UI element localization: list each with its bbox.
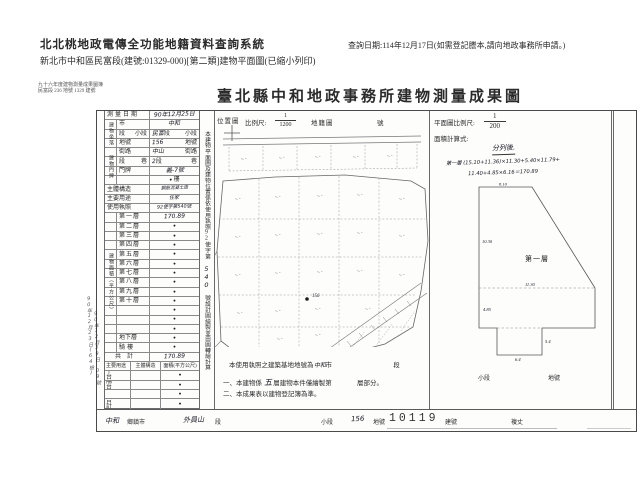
building-info-form: 建物坐落 建物門牌 建物面積（平方公尺） 測量日期 90年12月25日 市 中和… <box>104 111 200 409</box>
floor-plan-drawing: 8.10 10.30 第一層 11.30 4.85 5.4 6.4 <box>475 183 605 369</box>
survey-date-label: 測量日期 <box>107 112 139 118</box>
row-door: 門牌 義-7號 <box>105 167 199 176</box>
row-street: 街路 中山 街路 <box>105 148 199 157</box>
strip-section-value: 外員山 <box>183 415 204 426</box>
strip-township-value: 中和 <box>105 416 119 426</box>
floor-area-value: ● <box>173 271 176 276</box>
dim-mid: 11.30 <box>525 282 536 287</box>
row-section: 段小段 民富段 小段 <box>105 130 199 139</box>
floor-area-value: ● <box>173 317 176 322</box>
strip-parcel-label: 地號 <box>373 417 385 426</box>
row-survey-date: 測量日期 90年12月25日 <box>105 111 199 120</box>
license-value: 92使字第540號 <box>157 205 192 211</box>
row-structure: 主體構造 鋼筋混凝土造 <box>105 185 199 194</box>
sheet-title: 臺北縣中和地政事務所建物測量成果圖 <box>170 85 570 106</box>
row-floor-2: 第二層● <box>105 223 199 232</box>
survey-sheet: 建物坐落 建物門牌 建物面積（平方公尺） 測量日期 90年12月25日 市 中和… <box>96 110 637 432</box>
map-note-2: 一、本建物係 五 層建物本件僅繪製第 層部分。 <box>223 379 383 388</box>
annex-usage-header: 主要用途 <box>106 364 126 369</box>
query-date: 查詢日期:114年12月17日(如需登記謄本,請向地政事務所申請。) <box>348 40 565 51</box>
map-note-2-mid: 層建物本件僅繪製第 <box>273 380 332 387</box>
city-label: 市 <box>119 121 125 127</box>
plan-subsection-label: 小段 <box>478 373 490 382</box>
floor-label: 第十層 <box>119 298 140 304</box>
row-floor-8: 第八層● <box>105 278 199 287</box>
corner-note-line2: 民富段 236 地號 1329 建號 <box>38 89 168 95</box>
plan-scale-fraction: 1 200 <box>484 113 506 131</box>
city-value: 中和 <box>168 121 180 127</box>
row-lane: 段巷 2段 巷 <box>105 157 199 166</box>
vertical-note-hand: 540 <box>203 265 211 289</box>
floor-label: 騎樓 <box>119 345 135 351</box>
floor-label: 第三層 <box>119 233 140 239</box>
area-formula-label: 面積計算式: <box>434 133 468 143</box>
vertical-note-after: 號設計圖繪製並由圖轉繪計算 <box>204 295 210 370</box>
parcel-value: 156 <box>152 140 164 146</box>
usage-label: 主要用途 <box>107 196 131 202</box>
door-group-label: 建物門牌 <box>105 148 117 185</box>
lane-unit: 段 <box>156 159 162 165</box>
row-floor-blank: ● <box>105 325 199 334</box>
parcel-row-label: 地號 <box>119 140 131 146</box>
parcel-suffix: 地號 <box>185 140 197 146</box>
map-scale-denominator: 1200 <box>275 121 296 128</box>
vertical-note-before: 本建物平面圖及建物位置係依使用執照92使字第 <box>204 131 210 259</box>
area-group-label: 建物面積（平方公尺） <box>105 213 117 353</box>
door-floor-suffix: 樓 <box>174 177 180 183</box>
plan-parcel-label: 地號 <box>548 373 560 382</box>
row-floor-3: 第三層● <box>105 232 199 241</box>
map-note-2-tail: 層部分。 <box>357 380 383 387</box>
annex-row-value: ● <box>179 373 182 378</box>
floor-label: 第七層 <box>119 270 140 276</box>
annex-row-value: ● <box>179 392 182 397</box>
strip-survey-label: 複丈 <box>511 417 523 426</box>
subsection-small-label: 小段 <box>135 131 147 137</box>
subject-parcel-number: 156 <box>312 294 320 299</box>
section-value: 民富 <box>152 131 164 137</box>
lane-suffix-label: 巷 <box>141 159 147 165</box>
row-floor-9: 第九層● <box>105 288 199 297</box>
formula-line-1: 第一層 (15.10+11.36)×11.30+5.40×11.79+ <box>446 156 560 167</box>
section-suffix: 段 <box>164 131 170 137</box>
floor-area-value: ● <box>173 262 176 267</box>
dim-notch-right: 5.4 <box>545 339 551 344</box>
floor-area-value: ● <box>173 299 176 304</box>
floor-area-value: ● <box>173 336 176 341</box>
plan-floor-label: 第一層 <box>525 254 549 263</box>
plan-scale-label: 平面圖比例尺: <box>434 117 475 127</box>
structure-label: 主體構造 <box>107 187 131 193</box>
lane-tail: 巷 <box>191 159 197 165</box>
floor-area-value: ● <box>173 234 176 239</box>
margin-note-2: 90年12月29日 09號 <box>93 311 103 396</box>
cadastre-map-label: 地籍圖 <box>311 117 334 127</box>
row-annex-blank: ● <box>105 390 199 399</box>
annex-row-label: 平台 <box>106 371 129 380</box>
location-map-panel: 位置圖 比例尺: 1 1200 地籍圖 號 <box>215 111 430 409</box>
plan-scale-denominator: 200 <box>484 122 506 130</box>
map-note-1-prefix: 本使用執照之建築基地地號為 <box>229 362 314 369</box>
row-floor-1: 第一層170.89 <box>105 213 199 222</box>
floor-label: 地下層 <box>119 335 137 341</box>
floor-area-value: ● <box>173 345 176 350</box>
floor-area-value: ● <box>173 252 176 257</box>
plan-panel-divider <box>611 111 614 409</box>
row-usage: 主要用途 住家 <box>105 195 199 204</box>
plan-scale-numerator: 1 <box>484 113 506 122</box>
cadastre-number-label: 號 <box>377 117 384 127</box>
annex-structure-header: 主體構造 <box>135 364 155 369</box>
system-title: 北北桃地政電傳全功能地籍資料查詢系統 <box>40 36 265 52</box>
strip-subsection-label: 小段 <box>321 417 333 426</box>
annex-area-header: 面積(平方公尺) <box>163 364 196 369</box>
row-floor-6: 第六層● <box>105 260 199 269</box>
map-note-1-city: 中和 <box>313 363 325 369</box>
row-floor-blank: ● <box>105 316 199 325</box>
floor-label: 第四層 <box>119 242 140 248</box>
vertical-note-strip: 本建物平面圖及建物位置係依使用執照92使字第 540 號設計圖繪製並由圖轉繪計算 <box>200 111 215 409</box>
floor-area-value: ● <box>173 243 176 248</box>
total-value: 170.89 <box>164 353 185 360</box>
door-value: 義-7號 <box>165 168 183 175</box>
strip-section-label: 段 <box>215 417 221 426</box>
floor-area-value: ● <box>173 224 176 229</box>
floor-label: 第一層 <box>119 214 140 220</box>
strip-parcel-value: 156 <box>351 415 365 423</box>
map-note-3: 二、本成果表以建物登記簿為準。 <box>223 392 321 399</box>
annex-row-value: ● <box>179 383 182 388</box>
corner-note: 九十六年度建物測量成果圖簿 民富段 236 地號 1329 建號 <box>38 83 168 95</box>
subsection-suffix: 小段 <box>185 131 197 137</box>
row-annex-header: 主要用途 主體構造 面積(平方公尺) <box>105 362 199 371</box>
section-small-label: 段 <box>119 131 125 137</box>
map-note-1-city-suffix: 市 <box>326 362 333 369</box>
floor-plan-panel: 平面圖比例尺: 1 200 面積計算式: 分列後. 第一層 (15.10+11.… <box>430 111 638 409</box>
floor-label: 第五層 <box>119 252 140 258</box>
street-row-label: 街路 <box>119 149 131 155</box>
floor-label: 第二層 <box>119 224 140 230</box>
dim-lower-left: 4.85 <box>483 307 492 312</box>
location-group-label: 建物坐落 <box>105 120 117 148</box>
structure-value: 鋼筋混凝土造 <box>161 187 188 192</box>
floor-area-value: ● <box>173 290 176 295</box>
lane-value: 2 <box>152 159 156 165</box>
survey-date-value: 90年12月25日 <box>154 111 195 118</box>
row-floor-7: 第七層● <box>105 269 199 278</box>
map-note-1-tail: 段 <box>393 362 400 369</box>
row-parcel: 地號 156 地號 <box>105 139 199 148</box>
formula-note: 分列後. <box>492 143 516 156</box>
annex-row-label: 陽台 <box>106 381 129 390</box>
strip-underline <box>387 428 557 429</box>
row-floor-blank: ● <box>105 306 199 315</box>
license-label: 使用執照 <box>107 205 131 211</box>
row-basement: 地下層● <box>105 334 199 343</box>
annex-row-value: ● <box>179 402 182 407</box>
map-scale-label: 比例尺: <box>245 117 266 127</box>
document-path: 新北市中和區民富段(建號:01329-000)[第二類]建物平面圖(已縮小列印) <box>40 54 315 67</box>
usage-value: 住家 <box>169 196 179 201</box>
map-note-1: 本使用執照之建築基地地號為中和市 段 <box>229 363 400 370</box>
dim-notch-bottom: 6.4 <box>515 357 521 362</box>
floor-label: 第八層 <box>119 279 140 285</box>
row-floor-10: 第十層● <box>105 297 199 306</box>
row-annex-total: 合計● <box>105 399 199 408</box>
total-label: 共計 <box>115 354 139 360</box>
floor-area-value: 170.89 <box>164 214 185 221</box>
lane-row-label: 段 <box>119 159 125 165</box>
location-map: 156 <box>215 131 430 347</box>
strip-township-label: 鄉鎮市 <box>127 417 145 426</box>
strip-underline-2 <box>587 428 631 429</box>
row-floor-4: 第四層● <box>105 241 199 250</box>
subject-parcel-dot <box>305 297 309 301</box>
street-suffix: 街路 <box>185 149 197 155</box>
door-row-label: 門牌 <box>119 168 131 174</box>
map-note-2-prefix: 一、本建物係 <box>223 380 262 387</box>
formula-line-2: 11.40+4.85×6.16＝170.89 <box>468 168 538 177</box>
row-annex-platform: 平台● <box>105 371 199 380</box>
map-scale-numerator: 1 <box>275 113 296 121</box>
door-floor-dot: ● <box>169 178 172 183</box>
row-arcade: 騎樓● <box>105 343 199 352</box>
row-door-floor: ● 樓 <box>105 176 199 185</box>
floor-label: 第六層 <box>119 261 140 267</box>
row-license: 使用執照 92使字第540號 <box>105 204 199 213</box>
row-annex-balcony: 陽台● <box>105 381 199 390</box>
floor-area-value: ● <box>173 280 176 285</box>
bottom-strip: 中和 鄉鎮市 外員山 段 小段 156 地號 10119 建號 複丈 <box>97 409 636 431</box>
strip-building-no-label: 建號 <box>445 417 457 426</box>
map-scale-fraction: 1 1200 <box>275 113 296 129</box>
dim-top: 8.10 <box>499 183 508 187</box>
floor-label: 第九層 <box>119 289 140 295</box>
street-value: 中山 <box>152 149 164 155</box>
annex-row-label: 合計 <box>106 399 129 408</box>
screenshot-root: { "system_header": { "title": "北北桃地政電傳全功… <box>0 0 640 480</box>
row-city: 市 中和 <box>105 120 199 129</box>
row-floor-5: 第五層● <box>105 250 199 259</box>
map-note-2-floors: 五 <box>263 379 271 387</box>
floor-area-value: ● <box>173 308 176 313</box>
dim-left: 10.30 <box>482 239 493 244</box>
row-total: 共計 170.89 <box>105 353 199 362</box>
building-number-stamp: 10119 <box>389 412 439 425</box>
floor-area-value: ● <box>173 327 176 332</box>
